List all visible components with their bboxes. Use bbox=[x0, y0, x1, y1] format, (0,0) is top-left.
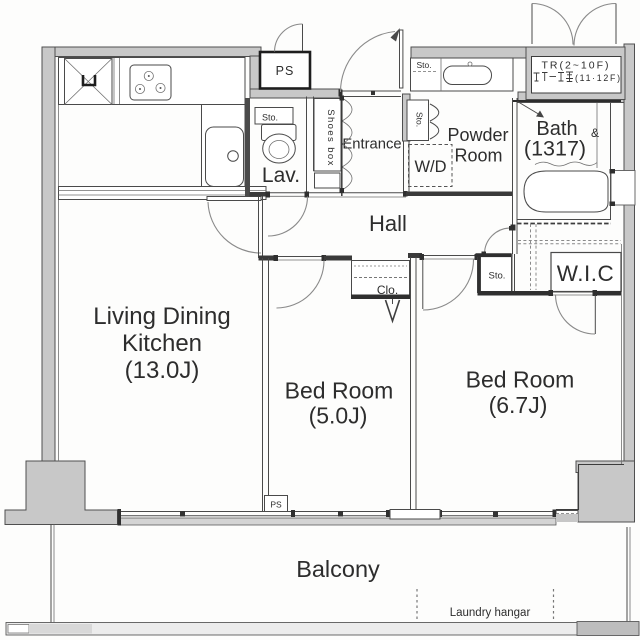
svg-text:(6.7J): (6.7J) bbox=[489, 392, 548, 418]
svg-text:(13.0J): (13.0J) bbox=[125, 357, 200, 384]
svg-text:Powder: Powder bbox=[447, 125, 508, 145]
svg-text:Balcony: Balcony bbox=[296, 556, 380, 582]
svg-text:Hall: Hall bbox=[369, 211, 407, 236]
svg-text:TR(2~10F): TR(2~10F) bbox=[542, 60, 609, 72]
svg-text:Sto.: Sto. bbox=[415, 112, 425, 127]
svg-text:Lav.: Lav. bbox=[262, 164, 300, 187]
svg-text:Entrance: Entrance bbox=[342, 137, 401, 153]
svg-text:Bed Room: Bed Room bbox=[285, 378, 394, 404]
svg-text:W/D: W/D bbox=[414, 158, 446, 176]
svg-text:(11·12F): (11·12F) bbox=[575, 73, 620, 83]
svg-text:(5.0J): (5.0J) bbox=[309, 403, 368, 429]
svg-text:PS: PS bbox=[270, 500, 282, 510]
svg-text:Kitchen: Kitchen bbox=[122, 330, 202, 357]
svg-text:&: & bbox=[591, 126, 599, 140]
svg-text:Shoes box: Shoes box bbox=[325, 109, 336, 167]
svg-text:Laundry hangar: Laundry hangar bbox=[450, 607, 531, 619]
svg-text:Sto.: Sto. bbox=[489, 271, 506, 282]
svg-text:Bed Room: Bed Room bbox=[466, 367, 575, 393]
svg-text:Sto.: Sto. bbox=[416, 60, 431, 70]
svg-text:Sto.: Sto. bbox=[262, 113, 278, 123]
svg-text:PS: PS bbox=[276, 64, 295, 78]
svg-text:Room: Room bbox=[454, 146, 502, 166]
svg-text:(1317): (1317) bbox=[524, 137, 586, 161]
svg-text:Living Dining: Living Dining bbox=[93, 303, 230, 330]
svg-text:W.I.C: W.I.C bbox=[557, 261, 615, 286]
